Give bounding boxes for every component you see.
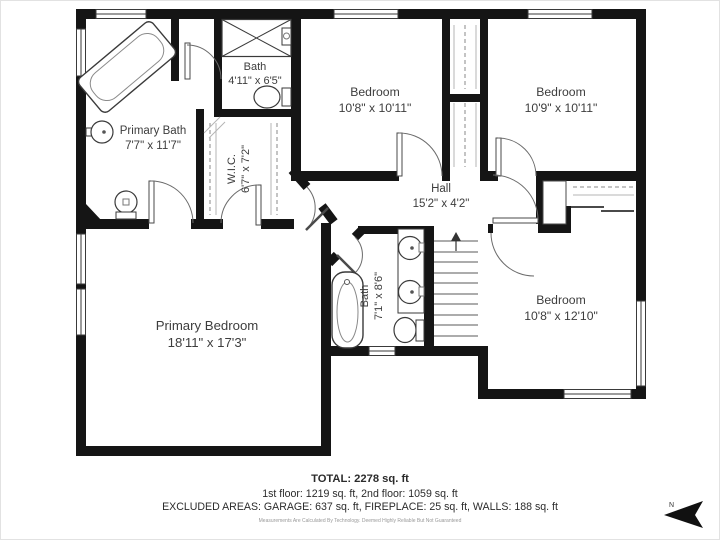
excluded-areas-text: EXCLUDED AREAS: GARAGE: 637 sq. ft, FIRE…: [1, 501, 719, 513]
room-label-hall: Hall 15'2" x 4'2": [413, 182, 470, 211]
room-label-upper-bath: Bath 4'11" x 6'5": [228, 60, 281, 88]
room-dims: 15'2" x 4'2": [413, 197, 470, 212]
room-label-lower-bath: Bath 7'1" x 8'6": [358, 272, 386, 320]
primary-bath-door-arc: [151, 181, 193, 223]
primary-bath-fixtures: [76, 19, 178, 219]
room-dims: 10'9" x 10'11": [525, 101, 598, 117]
shower: [222, 20, 291, 57]
room-dims: 6'7" x 7'2": [239, 145, 253, 193]
room-dims: 10'8" x 12'10": [524, 309, 598, 325]
lower-bath-door-arc: [355, 237, 362, 273]
room-dims: 4'11" x 6'5": [228, 74, 281, 88]
room-name: Primary Bedroom: [156, 318, 259, 335]
bedroom-b-door-leaf: [496, 138, 501, 176]
room-name: Bath: [358, 272, 372, 320]
stairs: [434, 232, 478, 336]
room-label-primary-bedroom: Primary Bedroom 18'11" x 17'3": [156, 318, 259, 352]
sliding-doors: [571, 207, 634, 211]
room-name: Primary Bath: [120, 124, 186, 139]
room-label-bedroom-c: Bedroom 10'8" x 12'10": [524, 293, 598, 324]
bedroom-a-door-leaf: [397, 133, 402, 176]
room-name: Bedroom: [524, 293, 598, 309]
room-name: Bath: [228, 60, 281, 74]
room-name: Hall: [413, 182, 470, 197]
doors: [149, 43, 566, 276]
closet-door-panel: [543, 181, 566, 224]
floor-areas-text: 1st floor: 1219 sq. ft, 2nd floor: 1059 …: [1, 488, 719, 500]
double-vanity: [398, 229, 424, 313]
lower-bath-door-leaf: [337, 255, 355, 273]
floor-plan-drawing: N: [1, 1, 719, 539]
bedroom-b-door-arc: [498, 138, 536, 176]
room-dims: 7'7" x 11'7": [120, 139, 186, 154]
vanity-sink: [282, 28, 291, 45]
upper-bath-door-leaf: [185, 43, 190, 79]
wic-door-leaf: [256, 185, 261, 225]
toilet: [254, 86, 291, 108]
primary-bath-door-leaf: [149, 181, 154, 223]
room-label-bedroom-a: Bedroom 10'8" x 10'11": [339, 85, 412, 116]
floorplan-page: N Primary Bath 7'7" x 11'7" Bath 4'11" x…: [0, 0, 720, 540]
room-label-wic: W.I.C. 6'7" x 7'2": [225, 145, 253, 193]
room-dims: 10'8" x 10'11": [339, 101, 412, 117]
toilet: [115, 191, 137, 219]
room-dims: 18'11" x 17'3": [156, 335, 259, 352]
total-area-text: TOTAL: 2278 sq. ft: [1, 473, 719, 485]
room-name: Bedroom: [525, 85, 598, 101]
bedroom-c-door-arc: [491, 233, 534, 276]
bedroom-a-door-arc: [399, 133, 442, 176]
sink: [86, 121, 113, 143]
room-label-primary-bath: Primary Bath 7'7" x 11'7": [120, 124, 186, 153]
disclaimer-text: Measurements Are Calculated By Technolog…: [1, 518, 719, 524]
room-dims: 7'1" x 8'6": [372, 272, 386, 320]
toilet: [394, 318, 424, 343]
hall-door-leaf: [493, 218, 538, 223]
bathtub: [76, 19, 178, 114]
hall-closet-door-arc: [493, 175, 538, 220]
room-label-bedroom-b: Bedroom 10'9" x 10'11": [525, 85, 598, 116]
room-name: Bedroom: [339, 85, 412, 101]
room-name: W.I.C.: [225, 145, 239, 193]
